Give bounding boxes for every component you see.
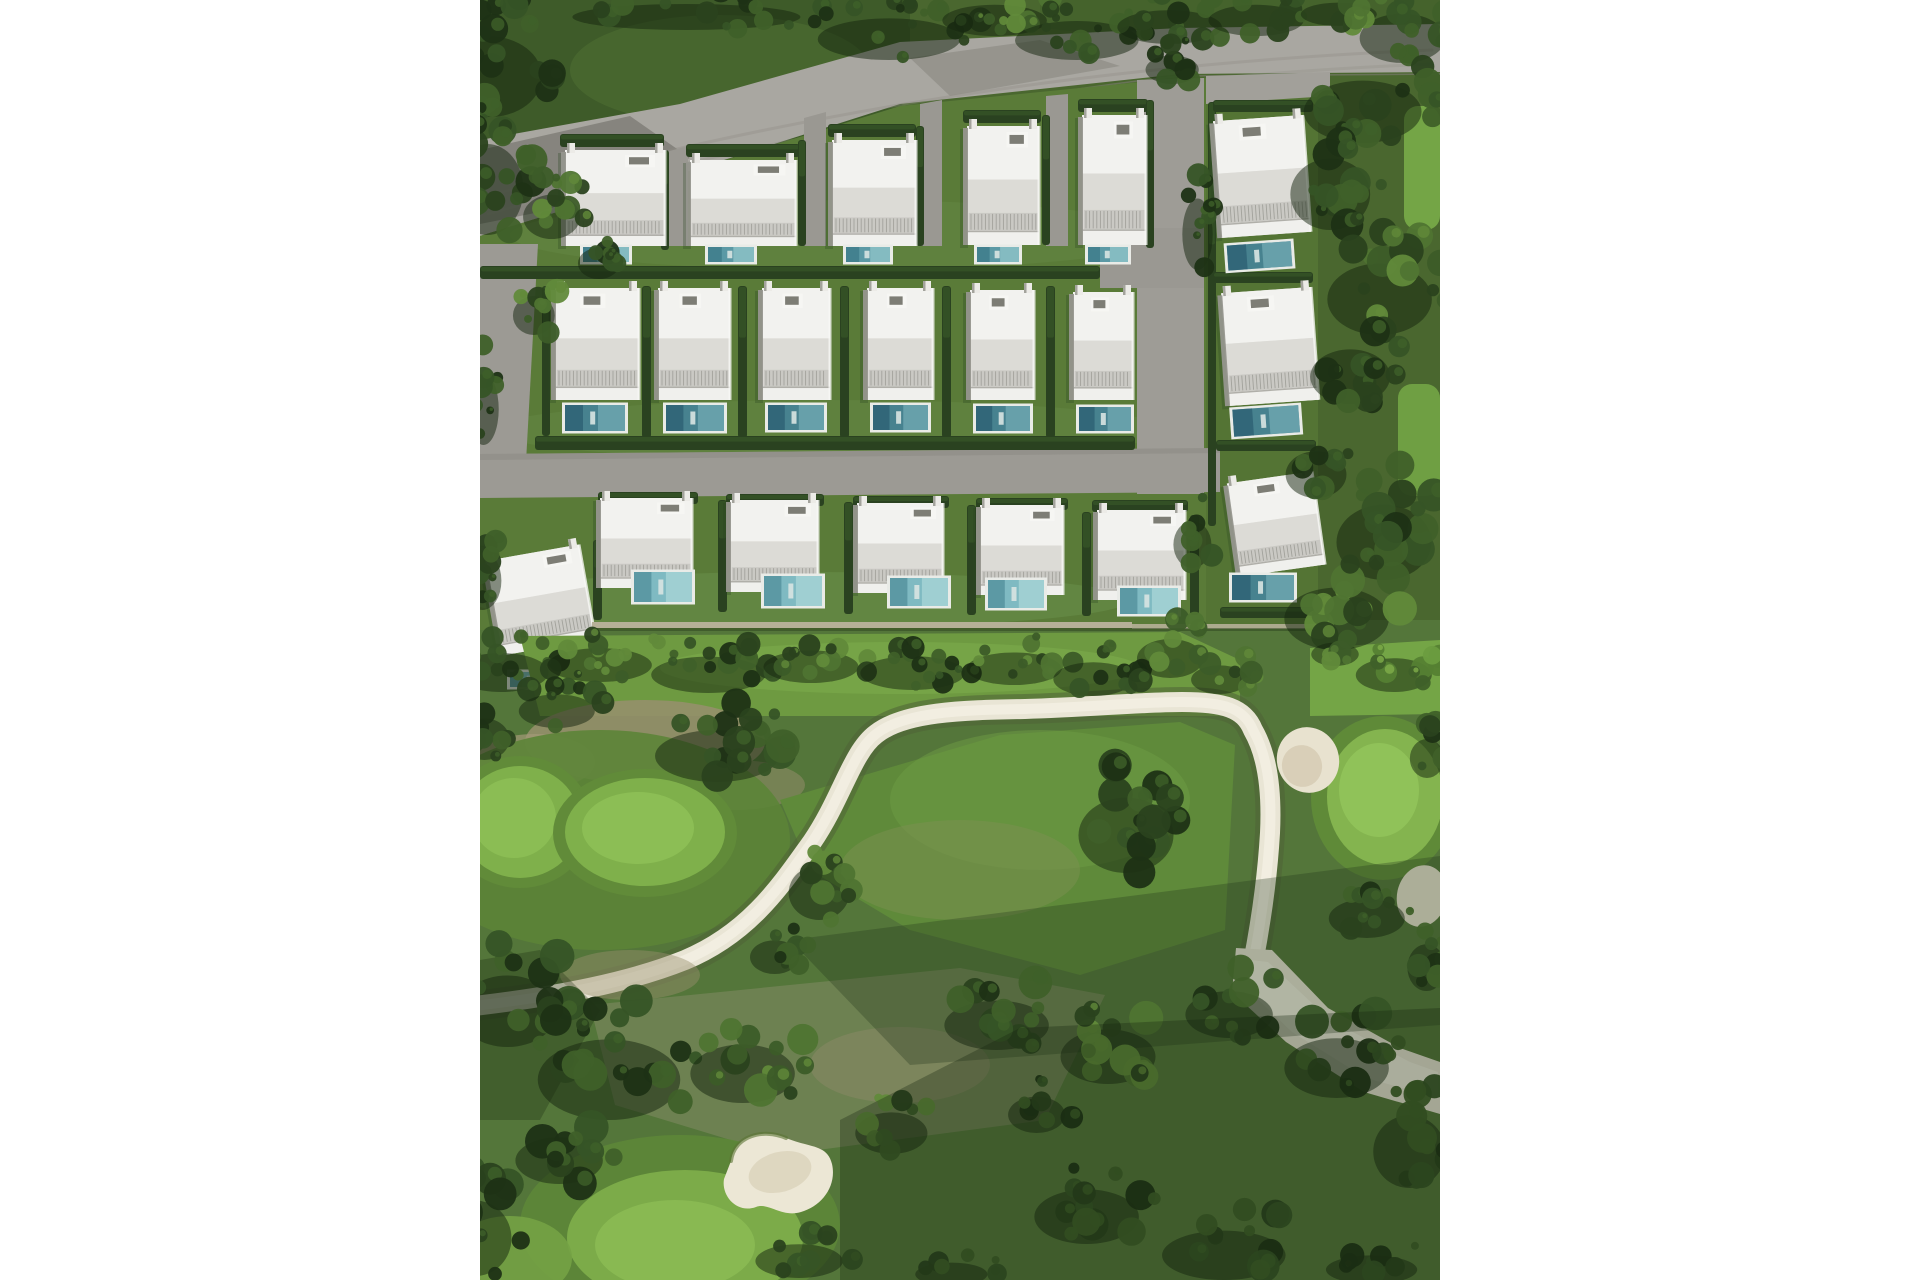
tree-canopy [652,635,666,649]
tree-canopy [888,652,900,664]
tree-canopy-highlight [1411,25,1418,32]
tree-canopy [605,1148,623,1166]
villa-east-edge [1062,505,1065,595]
villa-parapet-stub-shade [629,281,632,291]
hedge-highlight [964,111,1040,115]
tree-canopy-highlight [1365,123,1378,136]
golf-green-right-hi [1339,743,1419,837]
villa-west-wall [976,507,981,595]
villa-top-4 [960,119,1041,265]
pool-right-3 [1229,573,1297,603]
hedge-top-1 [560,134,664,147]
tree-canopy [1198,493,1208,503]
tree-canopy [496,217,522,243]
tree-canopy [769,1041,784,1056]
villa-south-fascia [1082,229,1146,245]
tree-canopy [1373,521,1403,551]
tree-canopy [819,6,834,21]
tree-canopy-highlight [1362,913,1367,918]
pool-steps [788,584,793,599]
tree-canopy-highlight [672,658,676,662]
villa-roof-hatch-slot [758,166,779,172]
villa-roof-hatch-slot [629,157,649,164]
tree-canopy [512,1231,530,1249]
pool-steps [1105,251,1110,259]
hedge-highlight [481,267,1099,271]
tree-canopy-highlight [1154,48,1162,56]
tree-canopy-highlight [1033,970,1048,985]
villa-parapet-stub-shade [933,496,936,506]
pool-steps [1101,413,1106,425]
villa-roof-mid [600,539,692,564]
tree-canopy [947,985,975,1013]
pool-water-deep [1088,247,1100,262]
tree-canopy [823,912,839,928]
tree-canopy [1339,235,1368,264]
tree-canopy-highlight [1142,13,1151,22]
pool-water-light [1108,407,1131,431]
villa-roof-mid [970,340,1034,371]
tree-canopy-highlight [937,2,947,12]
tree-canopy-highlight [1366,549,1373,556]
tree-canopy [1383,897,1395,909]
tree-canopy [1376,179,1387,190]
tree-canopy-highlight [496,646,505,655]
pool-steps [1258,581,1263,594]
villa-roof-mid [555,338,639,369]
villa-roof-hatch-slot [785,296,799,304]
tree-canopy [668,1089,693,1114]
hedge-highlight [1043,116,1049,159]
hedge-highlight [829,125,915,129]
tree-canopy-highlight [1171,614,1177,620]
tree-canopy [1160,33,1181,54]
tree-canopy [1416,976,1428,988]
tree-canopy [808,15,822,29]
tree-canopy [1356,468,1383,495]
tree-canopy [896,4,905,13]
tree-canopy [1193,993,1210,1010]
villa-south-fascia [867,387,933,400]
villa-roof-mid [762,338,830,369]
pool-steps [792,411,797,424]
hedge-highlight [917,127,923,167]
tree-canopy [1194,257,1214,277]
hedge-highlight [1079,100,1147,104]
tree-canopy-highlight [1199,219,1204,224]
villa-roof-hatch-slot [884,148,901,156]
hedge-top-2 [686,144,800,157]
tree-canopy [1369,555,1384,570]
tree-canopy-highlight [1373,320,1387,334]
tree-canopy-highlight [1168,787,1181,800]
tree-canopy [983,13,995,25]
pool-steps [690,412,695,425]
hedge-top-south [480,266,1100,279]
tree-canopy-highlight [660,1064,672,1076]
villa-louver-underline [867,387,933,389]
tree-canopy [537,321,559,343]
villa-roof-hatch-slot [1242,127,1261,137]
tree-canopy [1063,40,1077,54]
villa-roof-hatch-slot [584,296,601,304]
villa-louver-band [834,217,915,233]
tree-canopy-highlight [902,52,907,57]
tree-canopy-highlight [1371,890,1381,900]
villa-roof-hatch-slot [1250,298,1269,308]
tree-canopy [1417,922,1434,939]
tree-canopy [505,953,523,971]
tree-canopy [1340,555,1359,574]
tree-canopy [703,647,716,660]
tree-canopy [1381,125,1402,146]
tree-canopy-highlight [1378,645,1383,650]
villa-roof-mid [857,544,943,569]
villa-west-wall [1093,512,1098,600]
tree-canopy [973,655,984,666]
tree-canopy [1187,163,1210,186]
villa-bot-4 [850,496,951,609]
hedge-midv-1 [642,286,651,438]
tree-canopy [588,245,603,260]
pool-water-light [1269,405,1301,434]
villa-parapet-stub-shade [764,281,767,291]
tree-canopy [1156,68,1177,89]
pool-water-deep [1120,588,1137,614]
tree-canopy [594,661,602,669]
villa-parapet-stub-shade [869,281,872,291]
villa-parapet-stub-shade [906,133,909,143]
villa-roof-hatch-slot [661,505,679,512]
tree-canopy [1368,915,1381,928]
tree-canopy-highlight [988,983,997,992]
villa-east-edge [829,288,832,400]
villa-roof-hatch-slot [788,507,806,514]
tree-canopy [670,1041,691,1062]
hedge-highlight [687,145,799,149]
tree-canopy [1280,12,1295,27]
tree-canopy [1181,521,1197,537]
tree-canopy [758,763,771,776]
pool-water-deep [768,405,785,430]
villa-bot-5 [973,498,1065,611]
villa-louver-underline [762,387,830,389]
tree-canopy-highlight [1413,667,1418,672]
tree-canopy [1309,446,1329,466]
tree-canopy-highlight [1346,141,1355,150]
villa-parapet-stub-shade [1029,119,1032,129]
villa-east-edge [1033,290,1036,400]
tree-canopy [1240,661,1263,684]
tree-canopy [532,166,554,188]
hedge-rcol-1 [1213,272,1313,283]
tree-canopy [1340,180,1364,204]
villa-south-fascia [1073,387,1133,400]
tree-canopy [1098,777,1133,812]
hedge-highlight [536,437,1134,442]
tree-canopy [1227,955,1254,982]
villa-parapet-stub-shade [692,153,695,163]
tree-canopy-highlight [778,1068,790,1080]
villa-parapet-stub-shade [1136,108,1139,118]
tree-canopy [1407,513,1438,544]
tree-canopy [1358,282,1370,294]
tree-canopy [510,192,523,205]
villa-parapet-stub-shade [859,496,862,506]
villa-parapet-stub-shade [982,498,985,508]
pool-steps [1012,587,1017,601]
villa-mid-5 [963,283,1036,434]
pool-water-light [733,247,754,262]
pool-water-deep [1232,408,1254,436]
hedge-highlight [1214,273,1312,277]
tree-canopy [1008,669,1018,679]
tree-canopy-highlight [804,1059,812,1067]
hedge-midv-5 [1046,286,1055,438]
tree-canopy-highlight [491,100,500,109]
hedge-highlight [561,135,663,139]
tree-canopy [1041,23,1051,33]
tree-canopy [1136,805,1171,840]
hedge-highlight [943,287,950,338]
tree-canopy [817,1225,837,1245]
tree-canopy-highlight [1352,120,1360,128]
villa-roof-hatch-slot [1093,300,1105,308]
tree-canopy [816,654,829,667]
pool-water-light [799,405,824,430]
pool-water-deep [1232,575,1251,600]
tree-canopy-highlight [1408,47,1417,56]
tree-canopy-highlight [781,660,789,668]
villa-parapet-stub-shade [655,143,658,153]
pool-water-deep [666,405,683,431]
tree-canopy [979,645,990,656]
villa-roof-hatch-slot [1009,135,1023,144]
tree-canopy [802,665,817,680]
tree-canopy-highlight [566,642,575,651]
tree-canopy [991,999,1015,1023]
tree-canopy [774,951,786,963]
hedge-highlight [799,141,805,176]
tree-canopy-highlight [583,211,591,219]
pool-water-deep [1227,244,1248,270]
tree-canopy [782,647,796,661]
tree-canopy [826,643,837,654]
villa-west-wall [1069,294,1074,400]
tree-canopy [499,168,515,184]
villa-south-fascia [970,387,1034,400]
tree-canopy-highlight [1185,38,1188,41]
villa-south-fascia [555,387,639,400]
tree-canopy-highlight [1397,3,1408,14]
villa-parapet-stub-shade [682,491,685,501]
villa-top-3 [825,133,918,265]
villa-east-edge [664,150,667,246]
villa-roof-hatch-slot [1117,125,1130,135]
villa-louver-underline [690,236,796,238]
villa-louver-underline [1073,387,1133,389]
villa-parapet-stub-shade [820,281,823,291]
tree-canopy-highlight [1323,625,1335,637]
tree-canopy [784,20,794,30]
tree-canopy [1383,591,1417,625]
villa-roof-mid [1225,338,1317,376]
tree-canopy-highlight [1394,367,1403,376]
tree-canopy [1385,451,1414,480]
villa-parapet-stub-shade [732,493,735,503]
pool-water-deep [764,576,781,606]
villa-louver-band [692,223,795,236]
tree-canopy [684,637,696,649]
tree-canopy [697,715,718,736]
page-background [0,0,1920,1280]
villa-roof-mid [730,541,818,567]
villa-parapet-stub-shade [1024,283,1027,293]
pool-water-light [1266,575,1294,600]
pool-water-light [698,405,724,431]
tree-canopy [728,19,748,39]
tree-canopy [769,708,780,719]
villa-west-wall [828,142,833,246]
tree-canopy [923,671,935,683]
tree-canopy [1032,1002,1045,1015]
villa-parapet-stub-shade [786,153,789,163]
pool-water-light [1110,247,1128,262]
villa-top-5 [1075,108,1148,265]
pool-water-deep [565,405,583,431]
villa-parapet-stub-shade [602,491,605,501]
tree-canopy [1087,819,1112,844]
tree-canopy-highlight [489,591,495,597]
hedge-highlight [739,287,746,338]
tree-canopy-highlight [737,751,748,762]
tree-canopy [548,718,563,733]
hedge-midv-4 [942,286,951,438]
villa-west-wall [596,500,601,588]
tree-canopy-highlight [501,129,510,138]
hedge-highlight [1217,441,1315,445]
villa-south-fascia [762,387,830,400]
tree-canopy [483,546,500,563]
tree-canopy [1343,597,1372,626]
villa-louver-band [1084,210,1145,230]
tree-canopy-highlight [582,1020,588,1026]
tree-canopy [699,1033,719,1053]
tree-canopy [1295,458,1306,469]
tree-canopy [540,939,575,974]
tree-shadow [818,18,961,60]
pool-steps [999,412,1004,425]
hedge-mid-south [535,436,1135,450]
tree-canopy [720,1018,743,1041]
tree-canopy [800,862,823,885]
villa-south-fascia [658,387,730,400]
tree-canopy-highlight [1385,664,1395,674]
pool-water-deep [988,580,1005,608]
tree-canopy-highlight [1176,27,1185,36]
pool-water-light [903,405,928,430]
tree-canopy [620,984,653,1017]
tree-canopy-highlight [1109,641,1115,647]
pool-steps [590,412,595,425]
hedge-highlight [643,287,650,338]
tree-canopy [1427,284,1439,296]
tree-canopy-highlight [1174,809,1187,822]
tree-canopy [484,1178,517,1211]
tree-canopy [1060,3,1073,16]
tree-canopy [1314,357,1339,382]
villa-bot-2 [593,491,695,605]
hedge-highlight [1214,101,1312,105]
tree-canopy-highlight [775,931,780,936]
boundary-path [592,622,1132,628]
tree-canopy [485,930,512,957]
tree-canopy [1342,655,1351,664]
tree-canopy-highlight [1079,32,1089,42]
tree-canopy-highlight [577,1171,592,1186]
villa-west-wall [963,128,968,245]
villa-louver-underline [555,387,639,389]
hedge-topv-4 [1042,115,1050,245]
villa-west-wall [863,290,868,400]
villa-roof-mid [1073,341,1133,371]
tree-canopy [789,954,809,974]
tree-canopy-highlight [495,752,500,757]
tree-canopy [748,0,763,14]
tree-canopy [683,658,697,672]
tree-canopy-highlight [1397,338,1407,348]
villa-parapet-stub-shade [567,143,570,153]
tree-canopy [800,1250,820,1270]
boundary-path-shadow [592,628,1322,631]
tree-canopy-highlight [569,174,579,184]
tree-canopy-highlight [1373,360,1383,370]
tree-canopy [1390,43,1407,60]
tree-canopy [1313,96,1344,127]
villa-roof-mid [658,338,730,369]
tree-canopy [615,670,628,683]
tree-canopy-highlight [911,639,921,649]
pool-water-light [598,405,625,431]
villa-louver-band [1075,371,1132,387]
villa-west-wall [853,505,858,593]
villa-louver-underline [565,234,665,236]
villa-roof-hatch-slot [1153,517,1171,524]
villa-parapet-stub-shade [1075,285,1078,295]
tree-canopy [739,708,762,731]
tree-canopy [722,22,731,31]
tree-canopy [1181,553,1202,574]
tree-canopy [488,44,506,62]
scene-svg [480,0,1440,1280]
tree-canopy-highlight [609,252,613,256]
villa-roof-upper [1213,115,1306,174]
tree-canopy [492,731,511,750]
tree-canopy [1149,651,1169,671]
tree-canopy [1395,83,1410,98]
tree-canopy [936,671,944,679]
villa-roof-mid [867,338,933,369]
tree-canopy-highlight [568,1002,575,1009]
tree-canopy [736,632,760,656]
tree-canopy [1024,1012,1039,1027]
tree-canopy-highlight [877,32,883,38]
pool-water-deep [873,405,890,430]
tree-canopy-highlight [780,734,795,749]
tree-canopy [1198,652,1221,675]
tree-canopy-highlight [553,679,562,688]
tree-canopy-highlight [620,1066,627,1073]
